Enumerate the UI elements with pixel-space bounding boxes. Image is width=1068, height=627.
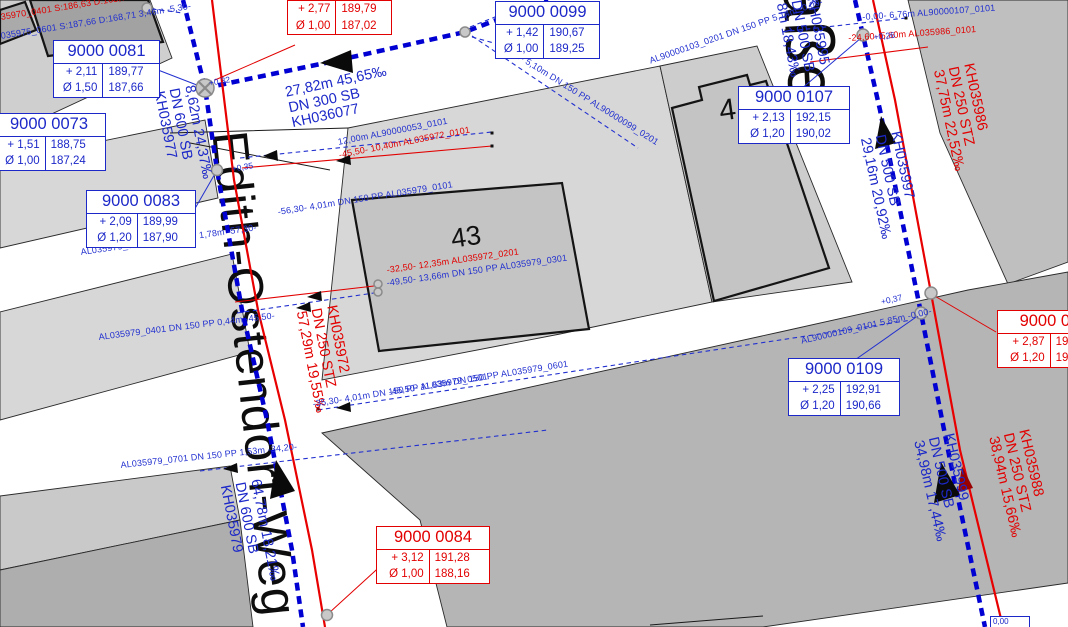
- manhole-id: 9000 0099: [496, 2, 599, 25]
- manhole-id: 9000 0109: [789, 359, 899, 382]
- junction-ticks: [317, 17, 908, 411]
- manhole-values: + 2,87192,9 Ø 1,20190,6: [998, 334, 1068, 367]
- manhole-label-9000-0084[interactable]: 9000 0084 + 3,12191,28 Ø 1,00188,16: [376, 526, 490, 584]
- manhole-label-9000-0107[interactable]: 9000 0107 + 2,13192,15 Ø 1,20190,02: [738, 86, 850, 144]
- manhole-label-9000-0081[interactable]: 9000 0081 + 2,11189,77 Ø 1,50187,66: [53, 40, 160, 98]
- corner-label[interactable]: 0,00: [990, 616, 1030, 627]
- manhole: [322, 610, 333, 621]
- connection-point: [374, 288, 382, 296]
- manhole-values: + 2,77189,79 Ø 1,00187,02: [288, 1, 391, 34]
- connection-point: [374, 280, 382, 288]
- manhole-id: 9000 0073: [0, 114, 105, 137]
- manhole-label-9000-0083[interactable]: 9000 0083 + 2,09189,99 Ø 1,20187,90: [86, 190, 196, 248]
- manhole: [460, 27, 470, 37]
- manhole-values: + 2,13192,15 Ø 1,20190,02: [739, 110, 849, 143]
- manhole-label-9000-010x[interactable]: 9000 010 + 2,87192,9 Ø 1,20190,6: [997, 310, 1068, 368]
- manhole-label-9000-0073[interactable]: 9000 0073 + 1,51188,75 Ø 1,00187,24: [0, 113, 106, 171]
- manhole-label-9000-0109[interactable]: 9000 0109 + 2,25192,91 Ø 1,20190,66: [788, 358, 900, 416]
- manhole-values: + 2,09189,99 Ø 1,20187,90: [87, 214, 195, 247]
- gis-map-view: Edith-Ostendorf-Weg e aße 43 4: [0, 0, 1068, 627]
- manhole-label-9000-0099[interactable]: 9000 0099 + 1,42190,67 Ø 1,00189,25: [495, 1, 600, 59]
- manhole-values: + 3,12191,28 Ø 1,00188,16: [377, 550, 489, 583]
- manhole-values: + 2,11189,77 Ø 1,50187,66: [54, 64, 159, 97]
- manhole-id: 9000 010: [998, 311, 1068, 334]
- manhole-values: + 2,25192,91 Ø 1,20190,66: [789, 382, 899, 415]
- manhole-values: + 1,42190,67 Ø 1,00189,25: [496, 25, 599, 58]
- manhole-values: + 1,51188,75 Ø 1,00187,24: [0, 137, 105, 170]
- manhole-id: 9000 0081: [54, 41, 159, 64]
- manhole-id: 9000 0084: [377, 527, 489, 550]
- manhole: [925, 287, 937, 299]
- manhole-id: 9000 0107: [739, 87, 849, 110]
- manhole-id: 9000 0083: [87, 191, 195, 214]
- manhole-label-partial[interactable]: + 2,77189,79 Ø 1,00187,02: [287, 0, 392, 35]
